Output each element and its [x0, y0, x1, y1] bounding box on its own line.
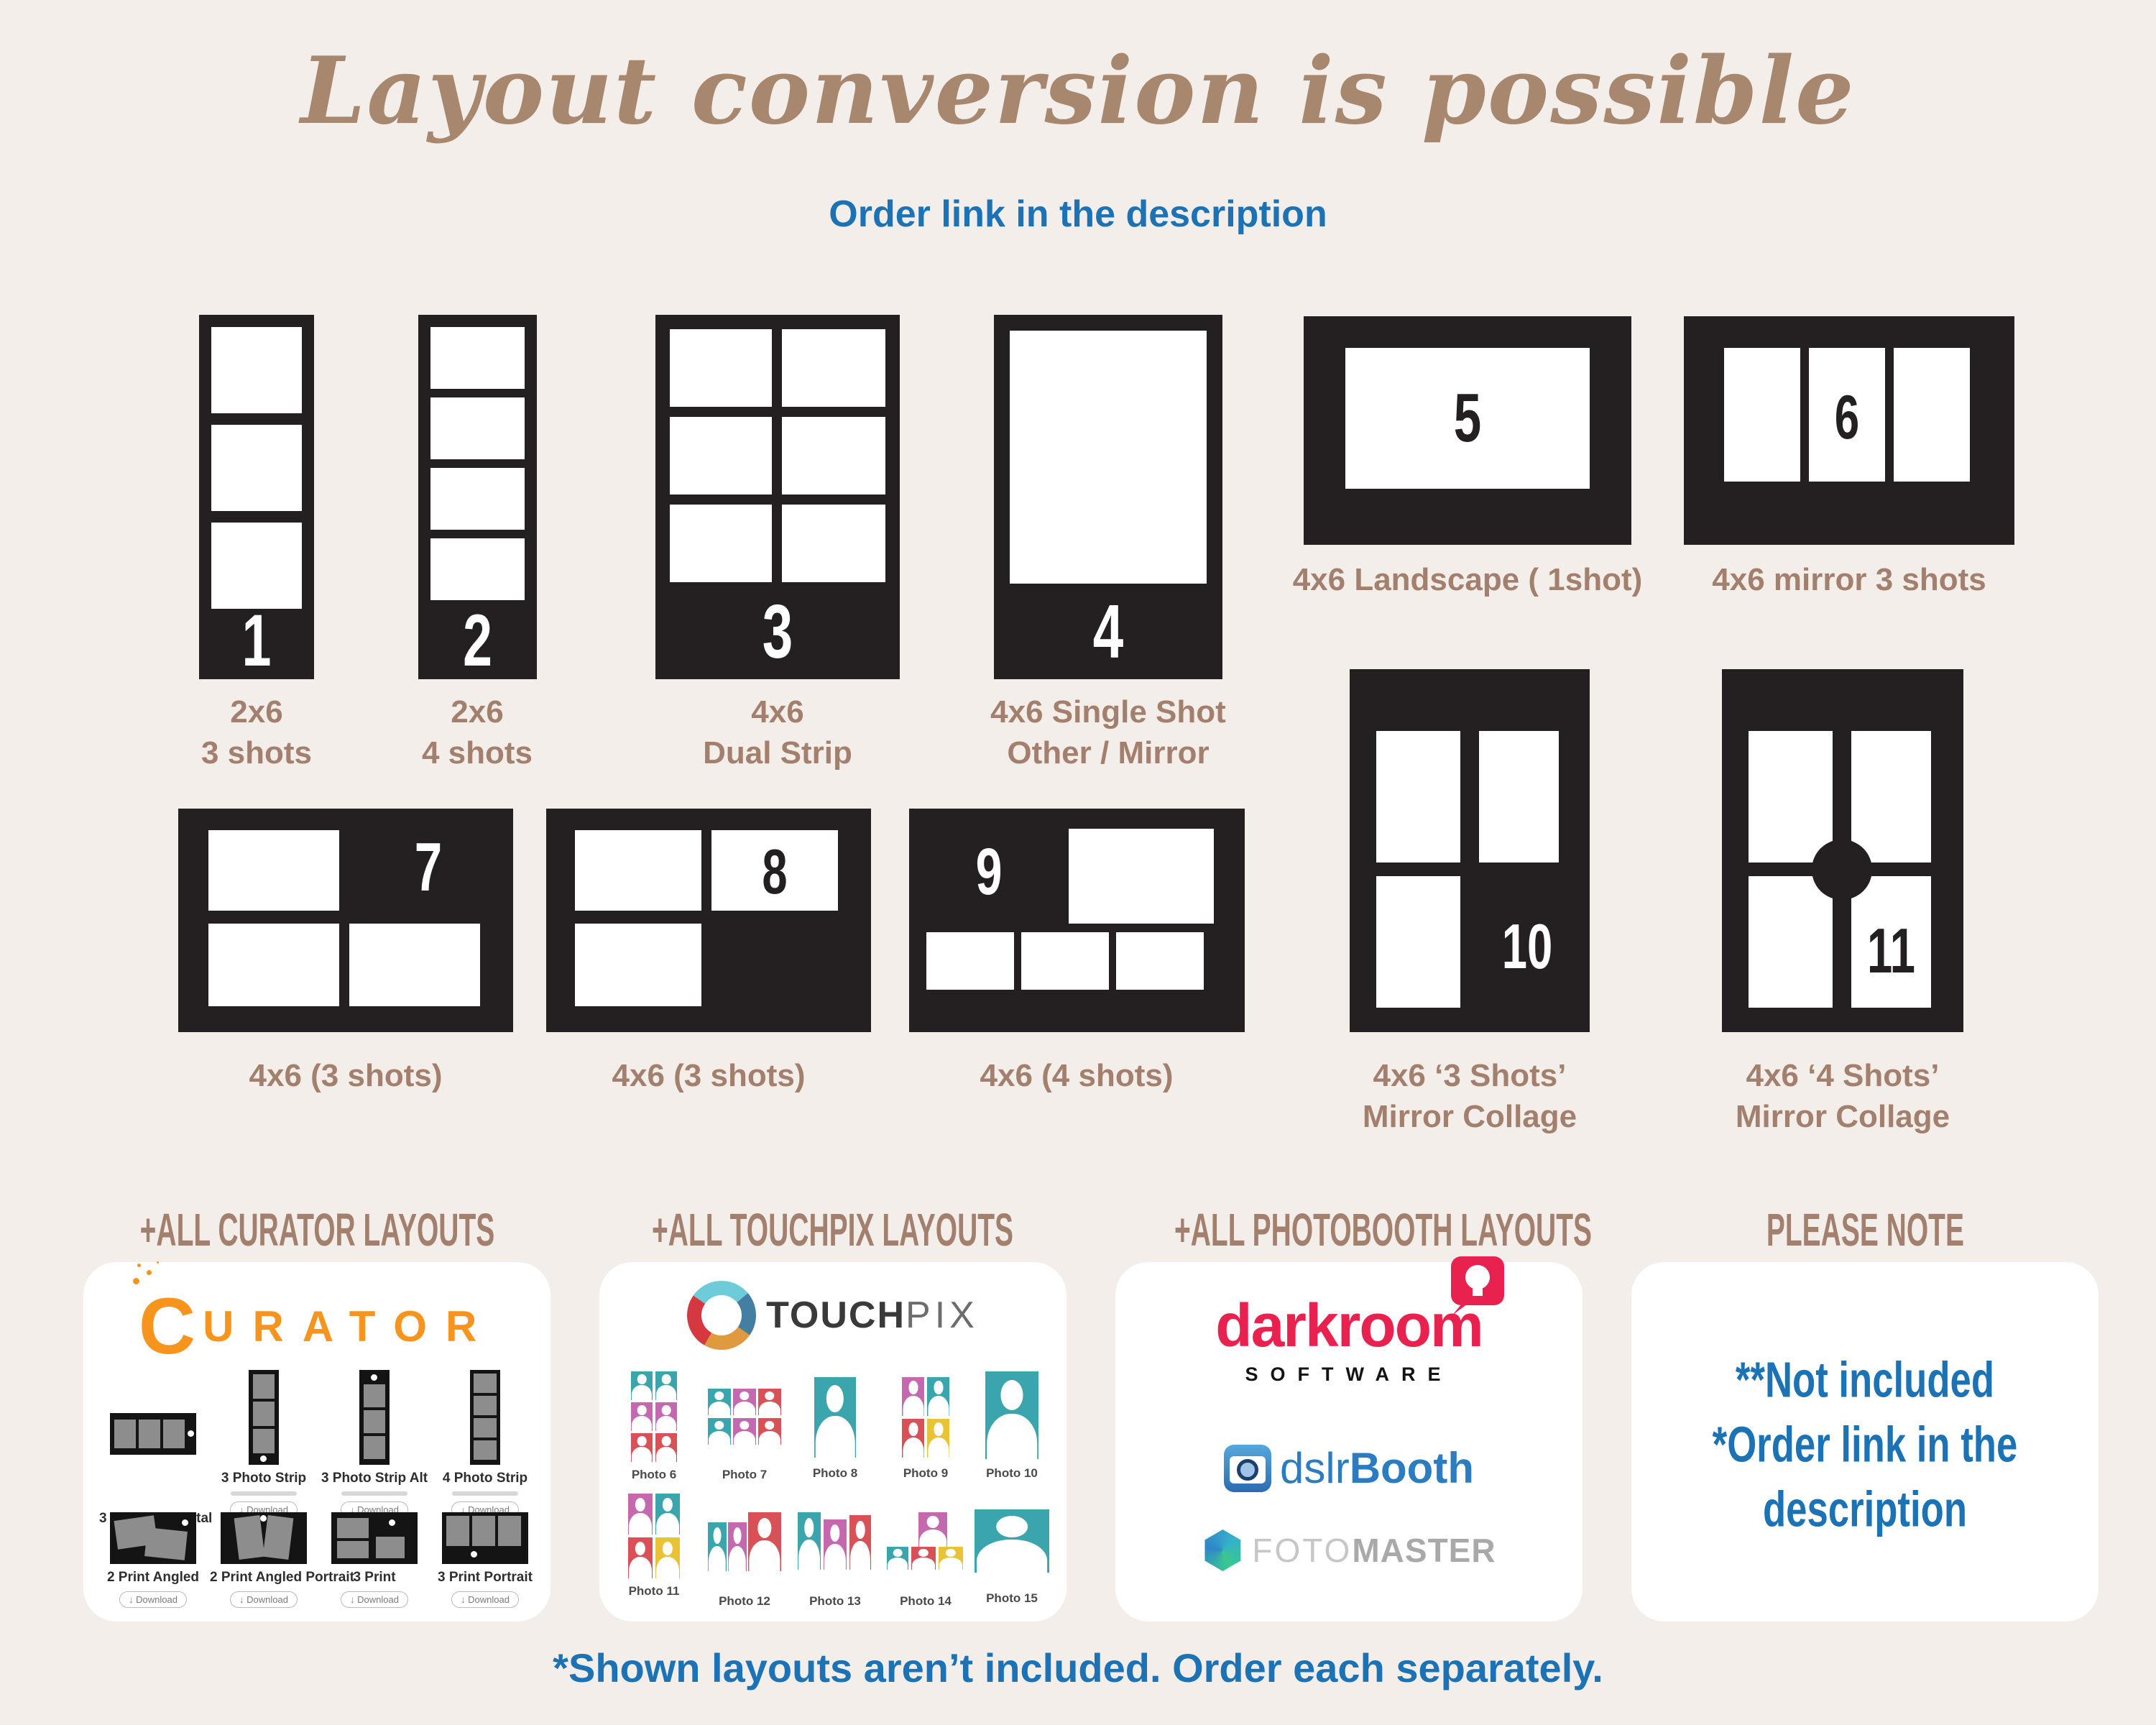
layout-label: 2x64 shots — [333, 691, 621, 773]
curator-logo: CURATOR — [83, 1281, 550, 1372]
curator-dot-icon — [371, 1374, 377, 1381]
layout-thumbnail — [110, 1512, 196, 1564]
layout-number: 1 — [215, 604, 298, 677]
person-icon — [824, 1519, 847, 1570]
curator-dot-icon — [182, 1519, 188, 1526]
thumb-cell — [253, 1429, 275, 1453]
person-icon — [758, 1418, 781, 1445]
thumbnail-caption: Photo 14 — [881, 1594, 970, 1609]
person-icon — [911, 1547, 936, 1570]
layout-frame-1: 1 — [199, 315, 314, 679]
thumbnail-caption: 2 Print Angled Portrait — [210, 1570, 318, 1586]
layout-label: 4x6 ‘4 Shots’Mirror Collage — [1663, 1055, 2022, 1137]
thumb-cell — [114, 1420, 136, 1448]
curator-dot-icon — [260, 1515, 267, 1522]
person-icon — [728, 1522, 747, 1571]
thumb-cell — [234, 1515, 265, 1560]
person-icon — [655, 1371, 677, 1400]
thumb-cell — [364, 1436, 385, 1459]
photo-slot — [1010, 331, 1207, 584]
layout-thumbnail — [442, 1512, 528, 1564]
person-icon — [758, 1389, 781, 1415]
person-icon — [902, 1377, 924, 1416]
photo-slot — [208, 924, 339, 1006]
curator-dots-icon — [133, 1278, 139, 1284]
photo-slot — [1069, 829, 1214, 924]
photo-slot — [211, 425, 302, 511]
curator-dot-icon — [260, 1455, 267, 1462]
photo-slot — [1376, 876, 1460, 1008]
person-icon — [902, 1419, 924, 1458]
photo-slot — [430, 327, 525, 389]
layout-number: 11 — [1863, 919, 1920, 983]
touchpix-ring-icon — [687, 1281, 756, 1350]
photo-slot — [670, 417, 772, 494]
thumb-cell — [474, 1396, 497, 1415]
thumb-cell — [139, 1420, 160, 1448]
curator-card: CURATOR 3 Strip Horizontal ↓ Download 3 … — [83, 1262, 550, 1621]
photo-slot — [349, 924, 480, 1006]
curator-dot-icon — [188, 1430, 194, 1437]
darkroom-logo: darkroom SOFTWARE — [1115, 1291, 1583, 1386]
photo-slot — [670, 505, 772, 582]
thumbnail-subtext — [452, 1491, 518, 1496]
layout-thumbnail — [221, 1512, 307, 1564]
photo-slot — [575, 924, 701, 1006]
thumbnail-caption: Photo 12 — [700, 1594, 789, 1609]
photo-slot — [1894, 348, 1970, 482]
layout-frame-11: 11 — [1722, 669, 1963, 1032]
photo-slot — [430, 538, 525, 600]
fotomaster-logo: FOTOMASTER — [1115, 1529, 1583, 1571]
layout-number: 10 — [1482, 915, 1572, 978]
photo-slot — [208, 830, 339, 911]
layout-label: 4x6Dual Strip — [634, 691, 921, 773]
layout-thumbnail — [628, 1494, 680, 1578]
note-text: **Not included *Order link in the descri… — [1631, 1348, 2099, 1542]
fotomaster-aperture-icon — [1202, 1529, 1243, 1571]
download-button[interactable]: ↓ Download — [451, 1591, 519, 1608]
layout-thumbnail — [708, 1512, 781, 1573]
person-icon — [939, 1547, 963, 1570]
thumbnail-caption: Photo 11 — [609, 1584, 699, 1598]
person-icon — [798, 1512, 821, 1570]
thumb-cell — [253, 1402, 275, 1426]
photobooth-heading: +ALL PHOTOBOOTH LAYOUTS — [1115, 1209, 1583, 1251]
thumbnail-caption: Photo 6 — [609, 1468, 699, 1482]
thumb-cell — [337, 1541, 369, 1558]
person-icon — [814, 1377, 856, 1458]
thumbnail-subtext — [341, 1491, 407, 1496]
layout-thumbnail — [359, 1370, 390, 1465]
layout-label: 4x6 (4 shots) — [933, 1055, 1220, 1096]
layout-frame-5: 5 — [1304, 316, 1631, 545]
touchpix-card: TOUCHPIX Photo 6 Photo 7 — [599, 1262, 1067, 1621]
layout-label: 4x6 ‘3 Shots’Mirror Collage — [1290, 1055, 1649, 1137]
person-icon — [628, 1494, 653, 1535]
curator-item: 2 Print Angled ↓ Download — [99, 1512, 207, 1608]
dslrbooth-camera-icon — [1224, 1445, 1271, 1492]
layout-thumbnail — [631, 1371, 677, 1462]
touchpix-item: Photo 9 — [881, 1377, 970, 1481]
layout-thumbnail — [814, 1377, 856, 1458]
layout-frame-8: 8 — [546, 809, 871, 1032]
layout-frame-7: 7 — [178, 809, 513, 1032]
layout-number: 4 — [1026, 594, 1191, 670]
touchpix-heading: +ALL TOUCHPIX LAYOUTS — [599, 1209, 1067, 1251]
layout-thumbnail — [706, 1389, 783, 1445]
person-icon — [708, 1389, 731, 1415]
thumb-cell — [364, 1384, 385, 1407]
thumbnail-subtext — [231, 1491, 297, 1496]
person-icon — [748, 1512, 781, 1571]
layout-thumbnail — [985, 1371, 1038, 1459]
person-icon — [708, 1418, 731, 1445]
thumb-cell — [474, 1374, 497, 1393]
please-note-card: **Not included *Order link in the descri… — [1631, 1262, 2099, 1621]
darkroom-bubble-icon — [1451, 1256, 1504, 1305]
person-icon — [655, 1402, 677, 1431]
photo-slot — [1479, 731, 1559, 862]
download-button[interactable]: ↓ Download — [341, 1591, 408, 1608]
layout-number: 8 — [729, 840, 821, 903]
photo-slot — [430, 468, 525, 530]
person-icon — [655, 1537, 680, 1578]
person-icon — [708, 1522, 727, 1571]
layout-frame-9: 9 — [909, 809, 1245, 1032]
layout-label: 4x6 (3 shots) — [202, 1055, 489, 1096]
curator-dot-icon — [471, 1551, 477, 1558]
layout-number: 3 — [690, 594, 866, 670]
thumb-cell — [472, 1516, 495, 1546]
photo-slot — [1749, 876, 1833, 1008]
thumbnail-caption: 3 Photo Strip Alt — [321, 1471, 428, 1486]
layout-number: 2 — [435, 604, 520, 677]
thumbnail-caption: Photo 15 — [967, 1591, 1056, 1606]
thumbnail-caption: Photo 10 — [967, 1466, 1056, 1481]
person-icon — [631, 1433, 653, 1462]
layout-thumbnail — [902, 1377, 949, 1458]
thumbnail-caption: 3 Photo Strip — [210, 1471, 318, 1486]
thumbnail-caption: 3 Print — [321, 1570, 428, 1586]
layout-number: 6 — [1820, 387, 1874, 448]
layout-label: 4x6 Landscape ( 1shot) — [1252, 559, 1683, 600]
curator-item: 4 Photo Strip ↓ Download — [431, 1370, 539, 1518]
download-button[interactable]: ↓ Download — [230, 1591, 298, 1608]
layout-thumbnail — [975, 1509, 1049, 1573]
layout-thumbnail — [249, 1370, 279, 1465]
layout-frame-10: 10 — [1350, 669, 1590, 1032]
person-icon — [927, 1377, 949, 1416]
person-icon — [887, 1547, 908, 1570]
person-icon — [631, 1371, 653, 1400]
center-circle — [1812, 839, 1872, 900]
order-link-subtitle: Order link in the description — [0, 193, 2156, 236]
touchpix-item: Photo 6 — [609, 1371, 699, 1482]
thumbnail-caption: Photo 8 — [791, 1466, 880, 1481]
person-icon — [918, 1512, 947, 1548]
darkroom-software-label: SOFTWARE — [1115, 1363, 1583, 1386]
photo-slot — [1749, 731, 1833, 862]
photo-slot — [211, 327, 302, 413]
layout-thumbnail — [331, 1512, 418, 1564]
layout-frame-4: 4 — [994, 315, 1222, 679]
photo-slot — [430, 397, 525, 459]
thumb-cell — [498, 1516, 521, 1546]
photo-slot — [782, 329, 885, 407]
bulb-icon — [1465, 1265, 1490, 1289]
person-icon — [631, 1402, 653, 1431]
person-icon — [985, 1371, 1038, 1459]
thumbnail-caption: Photo 13 — [791, 1594, 880, 1609]
thumbnail-caption: 4 Photo Strip — [431, 1471, 539, 1486]
dslrbooth-logo: dslrBooth — [1115, 1443, 1583, 1493]
thumb-cell — [446, 1516, 469, 1546]
photo-slot — [1724, 348, 1800, 482]
person-icon — [733, 1418, 756, 1445]
thumbnail-caption: Photo 7 — [700, 1468, 789, 1482]
photo-slot — [1851, 731, 1931, 862]
curator-item: 3 Photo Strip Alt ↓ Download — [321, 1370, 428, 1518]
layout-label: 4x6 (3 shots) — [565, 1055, 852, 1096]
photo-slot — [670, 329, 772, 407]
touchpix-item: Photo 7 — [700, 1389, 789, 1482]
curator-item: 3 Print Portrait ↓ Download — [431, 1512, 539, 1608]
person-icon — [849, 1515, 871, 1570]
thumb-cell — [474, 1418, 497, 1437]
thumb-cell — [337, 1518, 369, 1538]
thumbnail-caption: 2 Print Angled — [99, 1570, 207, 1586]
layout-thumbnail — [798, 1512, 872, 1573]
thumb-cell — [474, 1440, 497, 1460]
curator-item: 3 Photo Strip ↓ Download — [210, 1370, 318, 1518]
layout-label: 4x6 Single ShotOther / Mirror — [929, 691, 1288, 773]
please-note-heading: PLEASE NOTE — [1631, 1209, 2099, 1251]
thumbnail-caption: Photo 9 — [881, 1466, 970, 1481]
layout-label: 4x6 mirror 3 shots — [1634, 559, 2065, 600]
touchpix-item: Photo 13 — [791, 1512, 880, 1609]
layout-frame-3: 3 — [655, 315, 900, 679]
curator-dot-icon — [389, 1519, 395, 1526]
photo-slot — [926, 932, 1014, 990]
person-icon — [655, 1433, 677, 1462]
person-icon — [927, 1419, 949, 1458]
photo-slot — [782, 417, 885, 494]
person-icon — [975, 1509, 1049, 1573]
layout-thumbnail — [110, 1413, 196, 1455]
thumb-cell — [364, 1410, 385, 1433]
touchpix-item: Photo 15 — [967, 1509, 1056, 1606]
layout-number: 5 — [1350, 384, 1585, 453]
person-icon — [655, 1494, 680, 1535]
poster: Layout conversion is possible Order link… — [0, 0, 2156, 1725]
thumb-cell — [144, 1527, 188, 1560]
thumb-cell — [376, 1537, 405, 1558]
page-title: Layout conversion is possible — [0, 37, 2156, 145]
touchpix-item: Photo 12 — [700, 1512, 789, 1609]
curator-c-icon: C — [139, 1282, 195, 1371]
curator-heading: +ALL CURATOR LAYOUTS — [83, 1209, 550, 1251]
layout-thumbnail — [887, 1512, 964, 1573]
person-icon — [628, 1537, 653, 1578]
curator-item: 3 Print ↓ Download — [321, 1512, 428, 1608]
person-icon — [733, 1389, 756, 1415]
thumb-cell — [263, 1515, 294, 1560]
photo-slot — [1116, 932, 1204, 990]
layout-number: 9 — [931, 839, 1046, 905]
photo-slot — [1376, 731, 1460, 862]
thumb-cell — [163, 1420, 185, 1448]
download-button[interactable]: ↓ Download — [119, 1591, 187, 1608]
photobooth-card: darkroom SOFTWARE dslrBooth FOTOMASTER — [1115, 1262, 1583, 1621]
photo-slot — [575, 830, 701, 911]
layout-frame-6: 6 — [1684, 316, 2014, 545]
curator-item: 2 Print Angled Portrait ↓ Download — [210, 1512, 318, 1608]
layout-number: 7 — [367, 833, 489, 902]
thumb-cell — [253, 1374, 275, 1399]
layout-thumbnail — [470, 1370, 500, 1465]
footer-disclaimer: *Shown layouts aren’t included. Order ea… — [0, 1644, 2156, 1691]
photo-slot — [782, 505, 885, 582]
layout-frame-2: 2 — [418, 315, 537, 679]
touchpix-item: Photo 11 — [609, 1494, 699, 1598]
photo-slot — [1021, 932, 1109, 990]
photo-slot — [211, 523, 302, 609]
touchpix-item: Photo 14 — [881, 1512, 970, 1609]
touchpix-item: Photo 10 — [967, 1371, 1056, 1481]
thumbnail-caption: 3 Print Portrait — [431, 1570, 539, 1586]
touchpix-logo: TOUCHPIX — [599, 1281, 1067, 1350]
touchpix-item: Photo 8 — [791, 1377, 880, 1481]
